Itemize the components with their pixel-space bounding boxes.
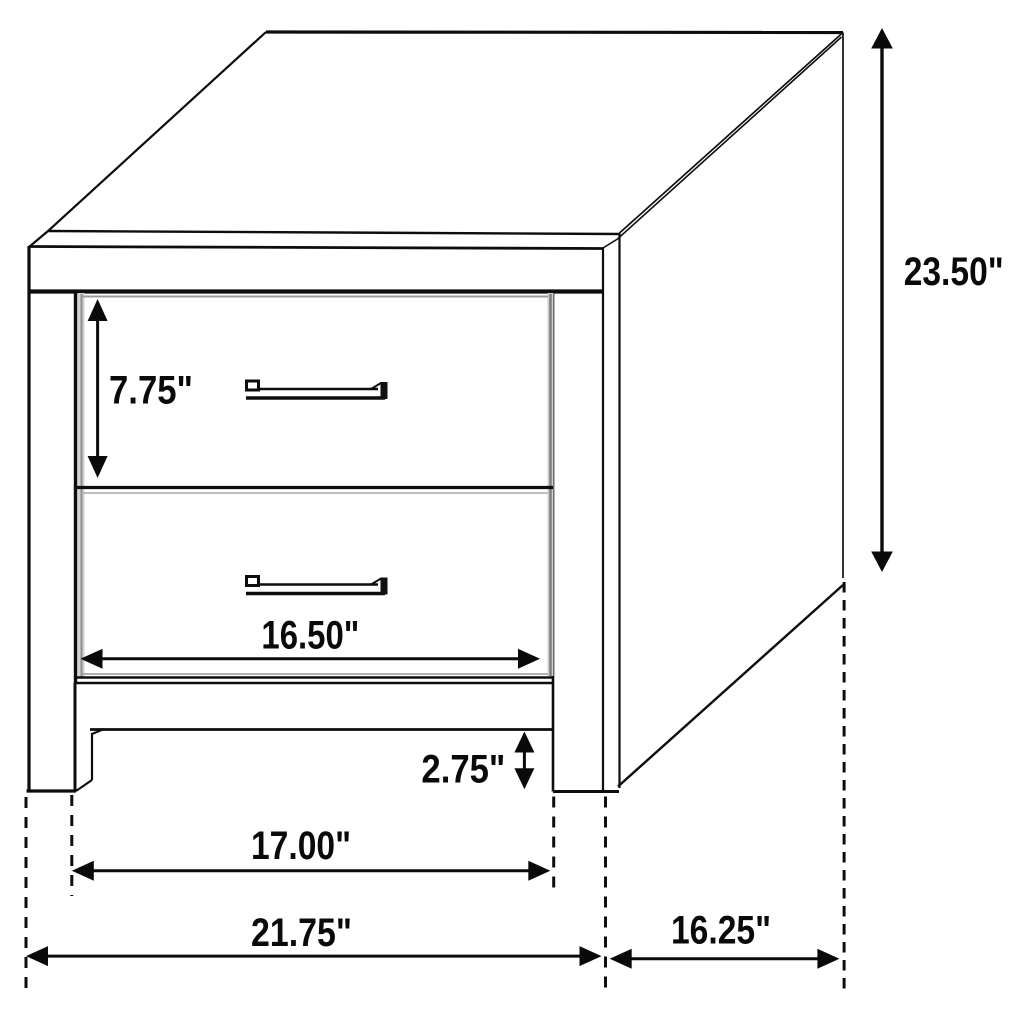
svg-text:17.00": 17.00" xyxy=(251,824,351,868)
svg-text:21.75": 21.75" xyxy=(251,911,352,955)
svg-text:2.75": 2.75" xyxy=(421,748,505,792)
svg-text:16.25": 16.25" xyxy=(671,909,771,953)
svg-text:16.50": 16.50" xyxy=(261,613,359,657)
svg-text:7.75": 7.75" xyxy=(109,369,193,413)
svg-text:23.50": 23.50" xyxy=(904,250,1004,294)
